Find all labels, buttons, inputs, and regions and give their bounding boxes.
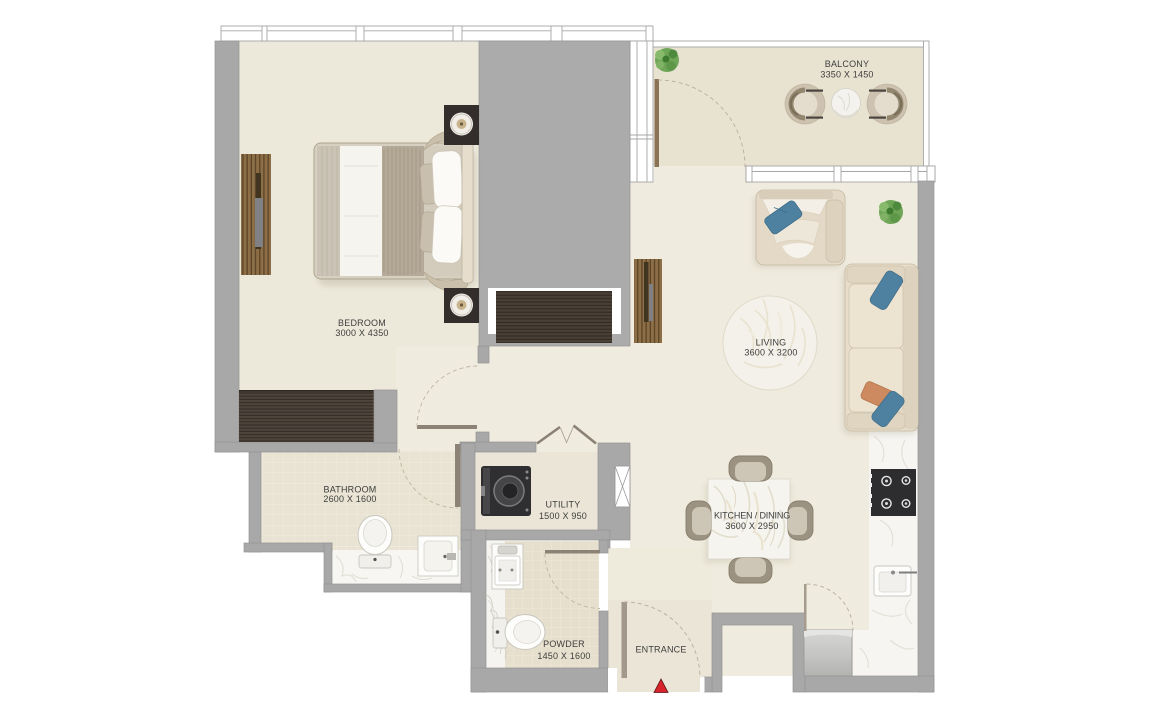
svg-text:UTILITY: UTILITY (546, 500, 581, 510)
svg-text:1450 X 1600: 1450 X 1600 (537, 651, 590, 661)
svg-text:KITCHEN / DINING: KITCHEN / DINING (714, 511, 790, 521)
svg-text:ENTRANCE: ENTRANCE (635, 645, 686, 655)
svg-text:3600 X 3200: 3600 X 3200 (744, 348, 797, 358)
svg-text:BALCONY: BALCONY (825, 59, 869, 69)
svg-text:3000 X 4350: 3000 X 4350 (335, 328, 388, 338)
svg-text:BATHROOM: BATHROOM (324, 485, 377, 495)
svg-text:BEDROOM: BEDROOM (338, 318, 386, 328)
svg-text:3600 X 2950: 3600 X 2950 (725, 521, 778, 531)
svg-text:3350 X 1450: 3350 X 1450 (820, 70, 873, 80)
svg-text:LIVING: LIVING (756, 338, 787, 348)
svg-text:2600 X 1600: 2600 X 1600 (323, 494, 376, 504)
svg-text:1500 X 950: 1500 X 950 (539, 511, 587, 521)
svg-text:POWDER: POWDER (543, 639, 585, 649)
